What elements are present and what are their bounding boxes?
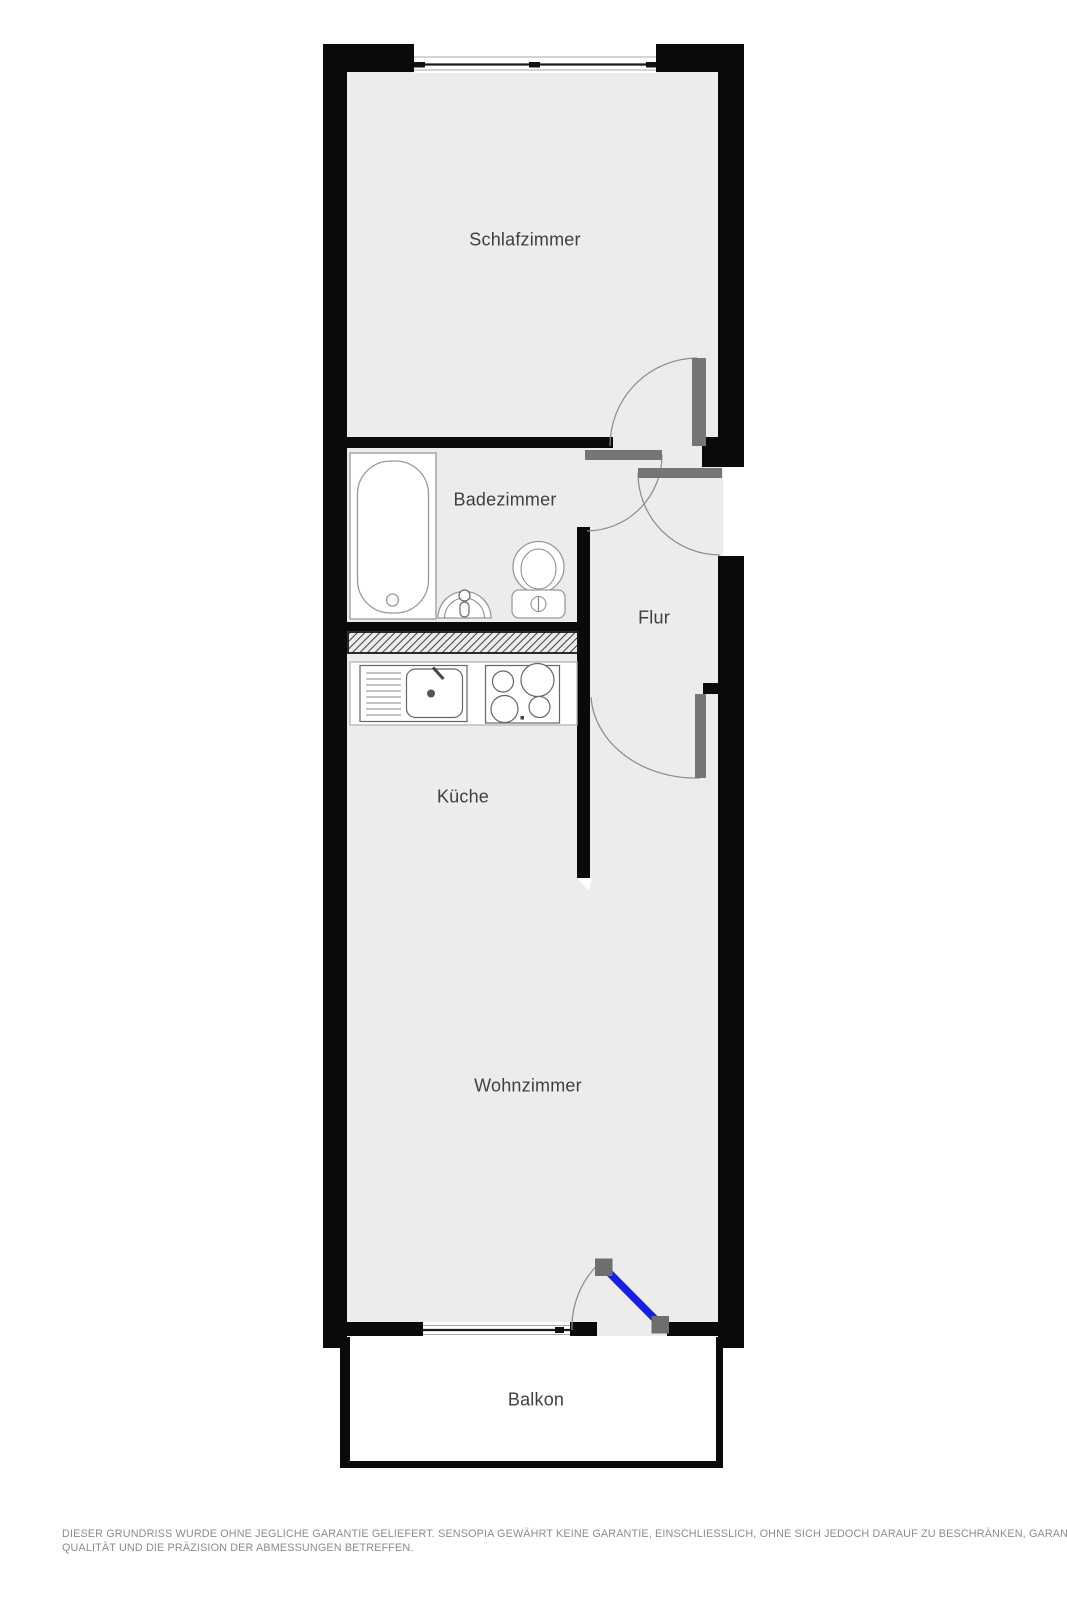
door-leaf <box>692 358 706 446</box>
floor-plan-page: Schlafzimmer Badezimmer Flur Küche Wohnz… <box>0 0 1067 1600</box>
toilet <box>512 542 565 619</box>
room-label-badezimmer: Badezimmer <box>453 490 556 511</box>
wall-bottom-seg3 <box>667 1322 718 1336</box>
washbasin-faucet <box>459 590 470 601</box>
shaft-hatch <box>348 632 578 653</box>
window-tick <box>529 62 540 68</box>
room-label-flur: Flur <box>638 608 670 629</box>
wall-badezimmer-bottom <box>347 622 590 631</box>
room-label-schlafzimmer: Schlafzimmer <box>469 230 580 251</box>
stove-burner <box>529 697 550 718</box>
door-leaf <box>585 450 662 460</box>
wall-left <box>323 44 347 1348</box>
wall-right-lower <box>718 556 744 1348</box>
disclaimer-line-2: QUALITÄT UND DIE PRÄZISION DER ABMESSUNG… <box>62 1542 1067 1556</box>
room-label-kueche: Küche <box>437 787 489 808</box>
window-tick <box>646 62 657 68</box>
kitchen-sink-drain <box>427 690 435 698</box>
kitchen-counter <box>350 662 577 725</box>
stove-burner <box>493 671 514 692</box>
balcony-wall-left <box>340 1337 350 1468</box>
bathtub-basin <box>358 461 429 613</box>
room-label-balkon: Balkon <box>508 1390 564 1411</box>
wall-flur-divider <box>577 527 590 878</box>
wall-schlafzimmer-bottom <box>347 437 613 448</box>
door-jamb-kueche <box>703 683 718 694</box>
stove-burner <box>491 696 518 723</box>
washbasin-tap <box>460 602 469 617</box>
wall-right-upper <box>718 44 744 467</box>
door-leaf <box>695 694 706 778</box>
stove-burner <box>521 664 554 697</box>
window-wohnzimmer <box>423 1322 570 1337</box>
room-label-wohnzimmer: Wohnzimmer <box>474 1076 582 1097</box>
balcony-door-hinge <box>652 1316 670 1334</box>
balcony-door-end <box>595 1259 613 1277</box>
balcony-wall-bottom <box>340 1461 723 1468</box>
door-leaf <box>638 468 722 478</box>
balcony-wall-right <box>716 1337 723 1468</box>
bathtub-drain <box>387 594 399 606</box>
window-schlafzimmer <box>414 44 657 73</box>
bathtub <box>350 453 436 619</box>
stove-knob <box>521 716 525 720</box>
window-tick <box>555 1327 564 1333</box>
disclaimer-text: DIESER GRUNDRISS WURDE OHNE JEGLICHE GAR… <box>62 1528 1067 1555</box>
disclaimer-line-1: DIESER GRUNDRISS WURDE OHNE JEGLICHE GAR… <box>62 1528 1067 1542</box>
wall-bottom-seg2 <box>570 1322 597 1336</box>
window-frame <box>414 44 656 73</box>
wall-bottom-seg1 <box>347 1322 423 1336</box>
window-tick <box>414 62 425 68</box>
